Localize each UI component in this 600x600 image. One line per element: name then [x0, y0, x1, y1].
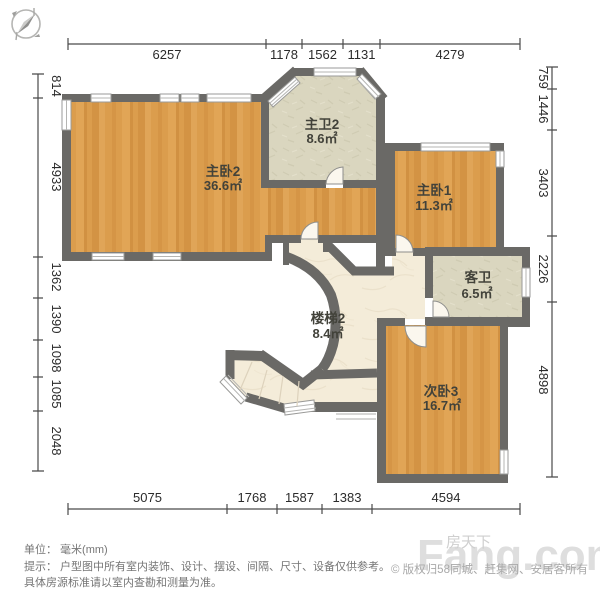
svg-text:2048: 2048	[49, 427, 64, 456]
svg-text:提示： 户型图中所有室内装饰、设计、摆设、间隔、尺寸、设备仅: 提示： 户型图中所有室内装饰、设计、摆设、间隔、尺寸、设备仅供参考。	[24, 559, 390, 573]
svg-text:4933: 4933	[49, 163, 64, 192]
svg-text:1098: 1098	[49, 344, 64, 373]
svg-text:8.6㎡: 8.6㎡	[306, 131, 337, 146]
svg-text:36.6㎡: 36.6㎡	[204, 178, 242, 193]
svg-text:单位： 毫米(mm): 单位： 毫米(mm)	[24, 542, 108, 556]
svg-text:4594: 4594	[432, 490, 461, 505]
svg-text:1362: 1362	[49, 263, 64, 292]
svg-text:2226: 2226	[536, 255, 551, 284]
svg-text:楼梯2: 楼梯2	[311, 310, 346, 326]
svg-text:房天下: 房天下	[446, 534, 491, 551]
svg-text:3403: 3403	[536, 169, 551, 198]
svg-text:814: 814	[49, 75, 64, 97]
svg-text:1178: 1178	[270, 47, 298, 62]
svg-text:1587: 1587	[285, 490, 314, 505]
svg-text:主卫2: 主卫2	[305, 116, 340, 132]
svg-text:1446: 1446	[536, 95, 551, 124]
svg-text:16.7㎡: 16.7㎡	[423, 398, 461, 413]
svg-text:1562: 1562	[308, 47, 337, 62]
svg-text:1085: 1085	[49, 380, 64, 409]
svg-text:主卧2: 主卧2	[206, 163, 241, 179]
svg-text:1390: 1390	[49, 305, 64, 334]
svg-text:主卧1: 主卧1	[417, 182, 452, 198]
svg-text:8.4㎡: 8.4㎡	[312, 326, 343, 341]
svg-text:5075: 5075	[133, 490, 162, 505]
svg-text:11.3㎡: 11.3㎡	[415, 198, 453, 213]
svg-text:4279: 4279	[436, 47, 465, 62]
svg-text:1131: 1131	[348, 47, 376, 62]
svg-text:6.5㎡: 6.5㎡	[461, 286, 492, 301]
svg-text:具体房源标准请以室内查勘和测量为准。: 具体房源标准请以室内查勘和测量为准。	[24, 575, 222, 589]
svg-text:759: 759	[536, 67, 551, 89]
svg-text:4898: 4898	[536, 366, 551, 395]
svg-text:次卧3: 次卧3	[424, 383, 459, 399]
svg-text:客卫: 客卫	[464, 269, 492, 285]
svg-text:1383: 1383	[333, 490, 362, 505]
svg-text:1768: 1768	[238, 490, 267, 505]
svg-text:6257: 6257	[153, 47, 182, 62]
svg-text:© 版权归58同城、赶集网、安居客所有: © 版权归58同城、赶集网、安居客所有	[391, 562, 588, 576]
